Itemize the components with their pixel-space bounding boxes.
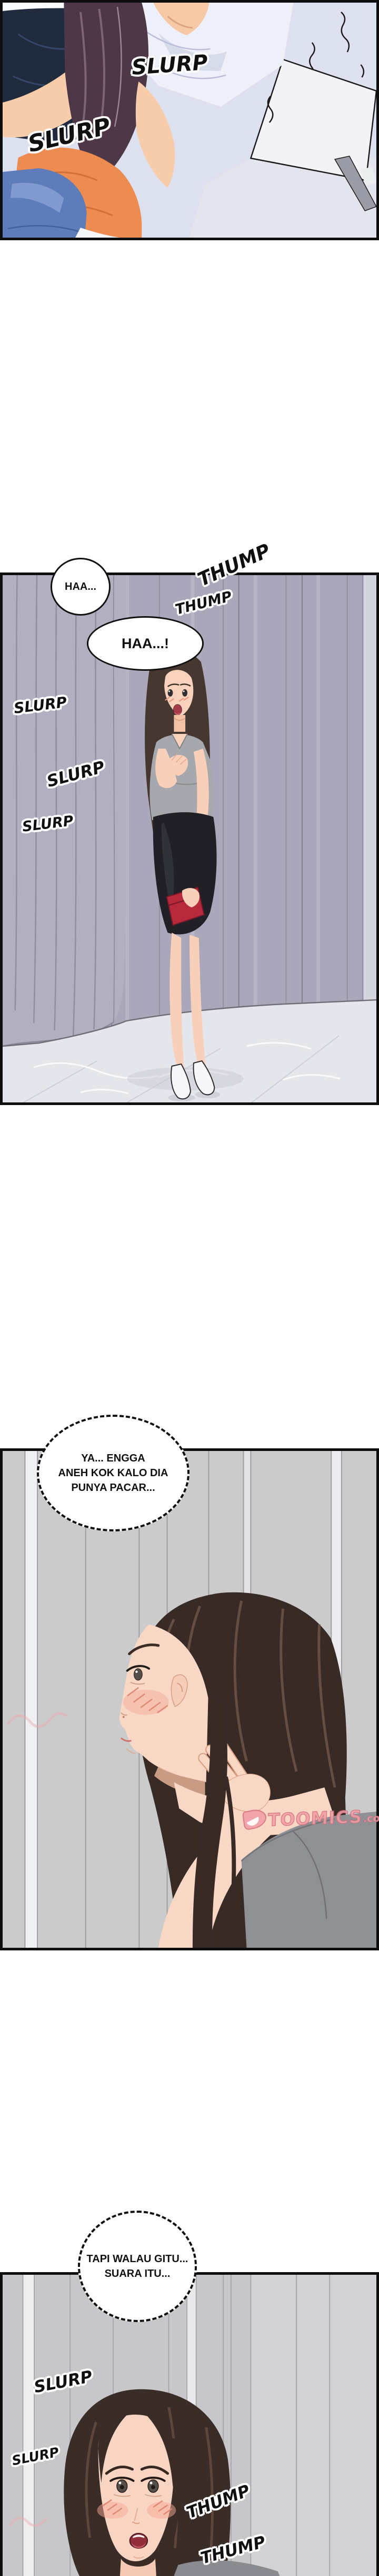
bubble-text: HAA... (65, 581, 96, 593)
eye (134, 1669, 142, 1680)
speech-bubble-haa-1: HAA... (51, 558, 111, 616)
panel-profile-closeup (0, 1448, 379, 1950)
open-mouth (173, 704, 182, 715)
profile-scene-art (3, 1451, 376, 1948)
toomics-logo-icon (242, 1807, 268, 1831)
thought-bubble-1: YA... ENGGA ANEH KOK KALO DIA PUNYA PACA… (37, 1415, 189, 1531)
comic-page: HAA... HAA...! YA... ENGGA ANEH KOK KALO… (0, 0, 379, 2576)
thought-line: ANEH KOK KALO DIA (58, 1466, 168, 1480)
thought-line: YA... ENGGA (58, 1451, 168, 1466)
thought-line: TAPI WALAU GITU... (87, 2252, 188, 2266)
thought-bubble-2: TAPI WALAU GITU... SUARA ITU... (78, 2211, 197, 2322)
bubble-text: HAA...! (122, 636, 169, 652)
thought-line: SUARA ITU... (87, 2266, 188, 2281)
sfx-slurp: SLURP (131, 52, 208, 78)
watermark-tld: .com (363, 1813, 379, 1825)
panel-bed-scene (0, 0, 379, 240)
worried-face-art (3, 2275, 376, 2576)
bed-scene-art (3, 3, 376, 238)
neck (174, 715, 185, 732)
thought-line: PUNYA PACAR... (58, 1480, 168, 1495)
speech-bubble-haa-2: HAA...! (87, 616, 204, 671)
panel-worried-face (0, 2272, 379, 2576)
watermark-brand: TOOMICS (267, 1808, 362, 1828)
